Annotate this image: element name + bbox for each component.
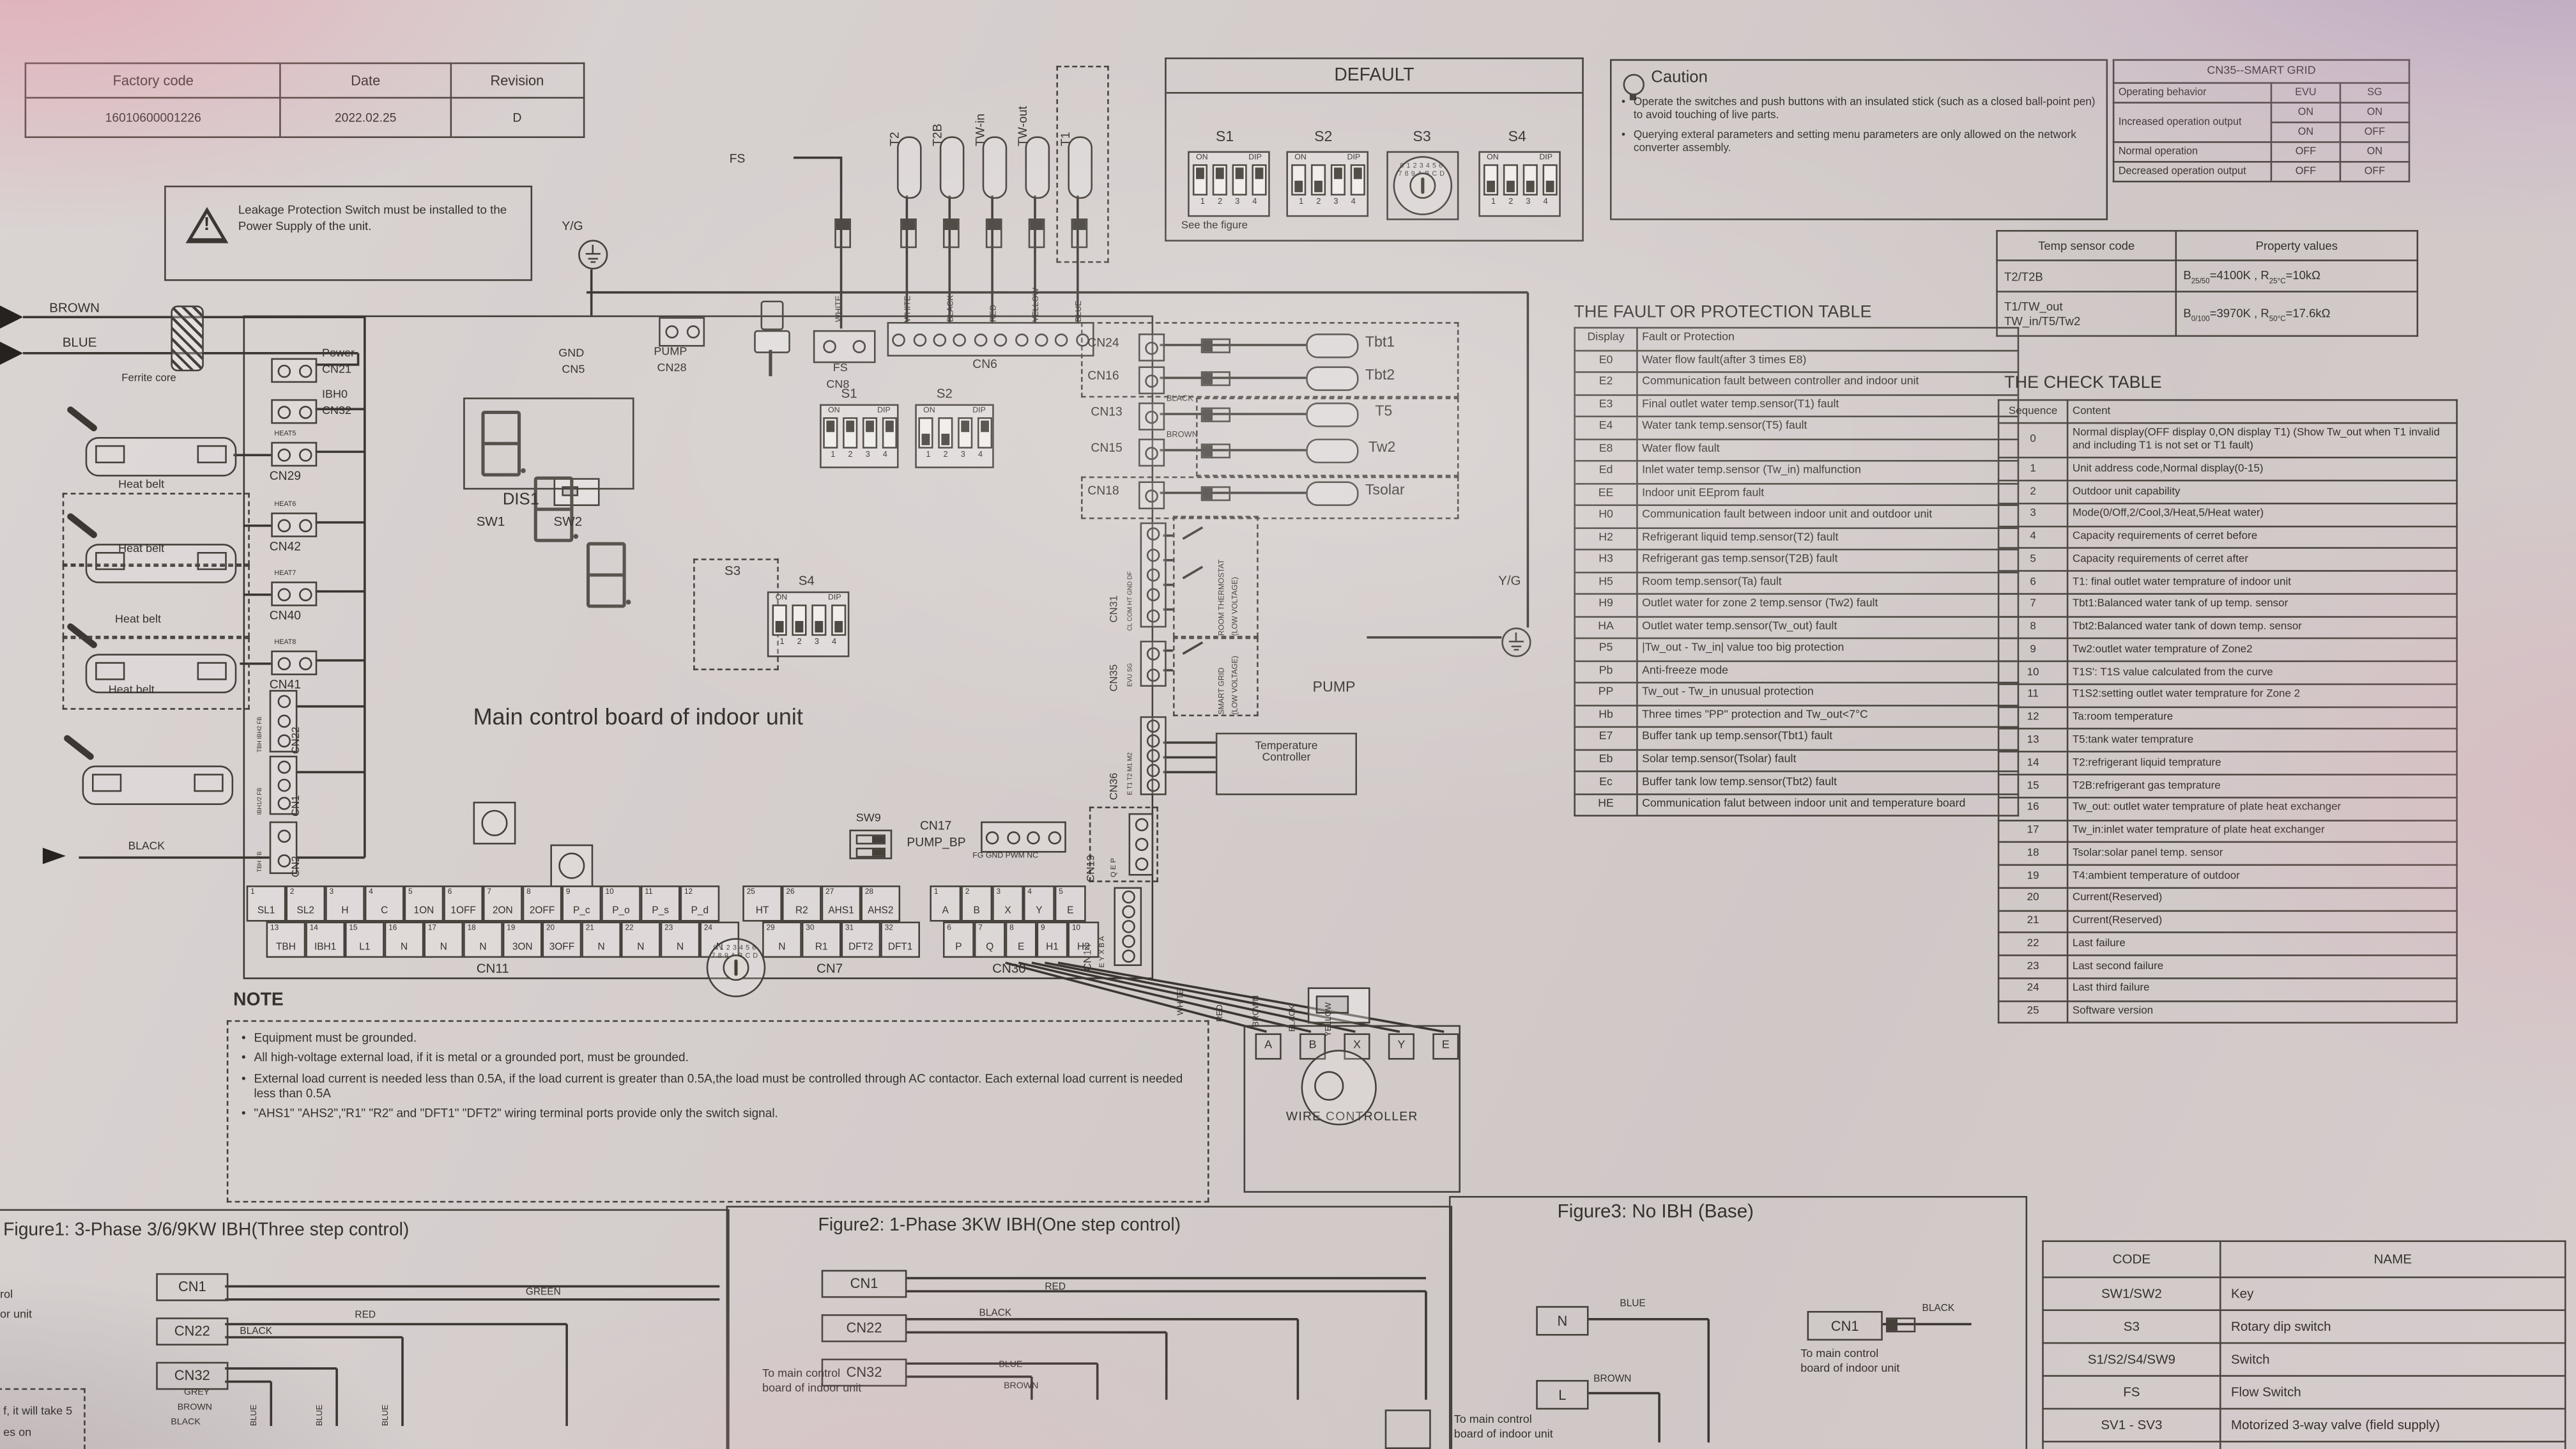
wc-wire-white: WHITE <box>1176 989 1186 1015</box>
t2-label: T2 <box>887 132 902 146</box>
fault-row: HAOutlet water temp.sensor(Tw_out) fault <box>1575 617 2018 639</box>
check-row: 20Current(Reserved) <box>1998 887 2457 910</box>
terminal: 9H1 <box>1037 922 1068 958</box>
code-row: SW1/SW2Key <box>2043 1277 2566 1310</box>
heat-belt-label: Heat belt <box>115 615 161 626</box>
connector-cn21 <box>271 358 317 383</box>
terminal: 1SL1 <box>247 885 286 922</box>
fault-header: Fault or Protection <box>1637 328 2018 350</box>
sw1-label: SW1 <box>477 514 505 529</box>
pump-text: PUMP <box>1313 678 1356 695</box>
cn42-label: CN42 <box>270 539 301 553</box>
room-thermostat-label: ROOM THERMOSTAT <box>1217 560 1225 636</box>
terminal: 18N <box>463 922 503 958</box>
fig2-cn1: CN1 <box>822 1270 907 1298</box>
ground-icon <box>578 240 608 269</box>
check-row: 10T1S': T1S value calculated from the cu… <box>1998 661 2457 684</box>
t1-wire-color: BLUE <box>1075 300 1084 322</box>
code-name-table: CODE NAME SW1/SW2KeyS3Rotary dip switchS… <box>2042 1240 2566 1449</box>
name-header: NAME <box>2220 1241 2565 1278</box>
sensor-tbt2 <box>1306 366 1358 391</box>
check-row: 18Tsolar:solar panel temp. sensor <box>1998 843 2457 865</box>
terminal: 21N <box>581 922 621 958</box>
board-s4-label: S4 <box>799 573 815 588</box>
connector-cn36 <box>1140 716 1167 795</box>
fault-table: Display Fault or Protection E0Water flow… <box>1574 327 2019 817</box>
fig1-black: BLACK <box>240 1328 272 1337</box>
fig1-blue: BLUE <box>381 1404 391 1426</box>
sg-row-label: Increased operation output <box>2113 103 2271 142</box>
default-settings-panel: DEFAULT S1 ONDIP 1 2 3 4 S2 ONDIP 1 2 3 … <box>1165 57 1584 241</box>
sg-row-label: Normal operation <box>2113 142 2271 162</box>
cn5-label: CN5 <box>562 365 585 376</box>
connector-cn40 <box>271 581 317 606</box>
code-row: S3Rotary dip switch <box>2043 1310 2566 1343</box>
connector-cn19 <box>1129 813 1154 876</box>
terminal: 14IBH1 <box>305 922 345 958</box>
wire-plug-icon <box>1201 443 1230 458</box>
cn2-label: CN2 <box>291 856 302 877</box>
low-voltage-label: (LOW VOLTAGE) <box>1230 655 1239 714</box>
date-value: 2022.02.25 <box>281 98 450 137</box>
terminal: 10H2 <box>1068 922 1099 958</box>
see-the-figure: See the figure <box>1181 220 1248 232</box>
fig1-grey: GREY <box>184 1388 210 1398</box>
fault-row: H5Room temp.sensor(Ta) fault <box>1575 572 2018 594</box>
t2-wire-color: WHITE <box>903 296 913 322</box>
code-row: SV1 - SV3Motorized 3-way valve (field su… <box>2043 1409 2566 1441</box>
fault-row: EdInlet water temp.sensor (Tw_in) malfun… <box>1575 461 2018 484</box>
fig2-red: RED <box>1045 1283 1066 1292</box>
temp-sensor-table: Temp sensor code Property values T2/T2B … <box>1996 230 2418 337</box>
terminal: 2SL2 <box>286 885 325 922</box>
fig2-cn22: CN22 <box>822 1314 907 1342</box>
cn7-label: CN7 <box>816 961 843 976</box>
date-header: Date <box>281 63 450 98</box>
heat8-label: HEAT8 <box>274 638 296 646</box>
terminal: 4C <box>365 885 404 922</box>
cn17-label: CN17 <box>920 818 951 833</box>
terminal: 23N <box>661 922 700 958</box>
terminal: 30R1 <box>802 922 841 958</box>
button-sw2 <box>550 845 593 887</box>
leakage-warning-text: Leakage Protection Switch must be instal… <box>238 202 521 234</box>
note-bullet: •Equipment must be grounded. <box>241 1030 1194 1045</box>
fault-row: H2Refrigerant liquid temp.sensor(T2) fau… <box>1575 528 2018 550</box>
heat-belt-label: Heat belt <box>118 480 164 491</box>
fig1-brown: BROWN <box>178 1403 212 1413</box>
terminal: 11P_s <box>641 885 680 922</box>
fig1-red: RED <box>355 1311 376 1321</box>
dip-switch-s2: ONDIP 1 2 3 4 <box>1286 151 1368 217</box>
terminal: 7Q <box>974 922 1006 958</box>
check-row: 13T5:tank water temprature <box>1998 730 2457 752</box>
check-row: 9Tw2:outlet water temprature of Zone2 <box>1998 639 2457 661</box>
terminal: 15L1 <box>345 922 385 958</box>
warning-triangle-icon: ! <box>186 207 229 243</box>
terminal: 6P <box>943 922 974 958</box>
tw-in-label: TW-in <box>972 114 987 146</box>
cn35-label: CN35 <box>1109 664 1121 692</box>
terminal: 22N <box>621 922 661 958</box>
dip-switch-s4: ONDIP 1 2 3 4 <box>1478 151 1561 217</box>
smart-grid-label: SMART GRID <box>1217 668 1225 715</box>
terminal: 26R2 <box>782 885 822 922</box>
wire-plug-icon <box>1071 218 1088 248</box>
fig1-blue: BLUE <box>250 1404 259 1426</box>
caution-title: Caution <box>1651 69 1708 87</box>
wire-plug-icon <box>1201 339 1230 353</box>
board-s2-label: S2 <box>937 386 953 401</box>
fig1-blue: BLUE <box>316 1404 325 1426</box>
fault-row: H0Communication fault between indoor uni… <box>1575 505 2018 528</box>
terminal: 3H <box>325 885 365 922</box>
fs-label: FS <box>730 151 746 166</box>
dip-numbers: 1 2 3 4 <box>1190 197 1268 207</box>
cn31-label: CN31 <box>1109 595 1121 623</box>
cn21-label: CN21 <box>322 365 351 376</box>
check-row: 19T4:ambient temperature of outdoor <box>1998 865 2457 887</box>
fig3-brown: BROWN <box>1593 1375 1631 1384</box>
tw-out-label: TW-out <box>1015 106 1030 146</box>
factory-code-header: Factory code <box>26 63 281 98</box>
check-row: 0Normal display(OFF display 0,ON display… <box>1998 423 2457 458</box>
ferrite-core-icon <box>171 305 203 371</box>
check-row: 5Capacity requirements of cerret after <box>1998 548 2457 571</box>
terminal: 5E <box>1055 885 1086 922</box>
check-row: 2Outdoor unit capability <box>1998 480 2457 503</box>
pump-icon <box>1301 1050 1377 1125</box>
note-title: NOTE <box>233 991 284 1011</box>
fault-row: EEIndoor unit EEprom fault <box>1575 483 2018 505</box>
ground-icon <box>1501 627 1531 657</box>
check-row: 4Capacity requirements of cerret before <box>1998 526 2457 548</box>
terminal-strip-cn7-bottom: 29N30R131DFT232DFT1 <box>762 922 920 958</box>
terminal-strip-cn7-top: 25HT26R227AHS128AHS2 <box>742 885 900 922</box>
caution-bullets: •Operate the switches and push buttons w… <box>1621 97 2098 162</box>
cn19-pins: Q E P <box>1109 858 1117 877</box>
fig2-brown: BROWN <box>1004 1382 1038 1391</box>
board-s1-label: S1 <box>841 386 857 401</box>
smart-grid-table: CN35--SMART GRID Operating behavior EVU … <box>2113 59 2410 183</box>
fs-cn8-label: FS <box>833 363 848 374</box>
terminal: 12P_d <box>680 885 720 922</box>
code-header: CODE <box>2043 1241 2221 1278</box>
cn6-label: CN6 <box>972 356 997 371</box>
fault-row: E3Final outlet water temp.sensor(T1) fau… <box>1575 394 2018 417</box>
yg-label-right: Y/G <box>1498 573 1521 588</box>
sequence-header: Sequence <box>1998 400 2067 422</box>
fig3-connector-stub <box>1385 1409 1431 1449</box>
cn36-pins: E T1 T2 M1 M2 <box>1127 753 1133 795</box>
caution-panel: Caution •Operate the switches and push b… <box>1610 59 2108 220</box>
tbt-dash-box <box>1081 322 1459 397</box>
cn30-label: CN30 <box>992 961 1026 976</box>
tw2-wire-color: BROWN <box>1167 431 1198 440</box>
on-label: ON <box>1196 155 1208 163</box>
fault-row: PPTw_out - Tw_in unusual protection <box>1575 683 2018 705</box>
connector-cn32 <box>271 399 317 424</box>
wire-plug-icon <box>1029 218 1045 248</box>
wiring-diagram-photo: Factory code Date Revision 1601060000122… <box>0 0 2576 1449</box>
heat-belt-4 <box>82 765 234 805</box>
content-header: Content <box>2067 400 2457 422</box>
terminal-strip-cn30-bottom: 6P7Q8E9H110H2 <box>943 922 1099 958</box>
display-dis1 <box>463 397 634 489</box>
heat-belt-3-box <box>63 565 250 638</box>
connector-cn42 <box>271 512 317 537</box>
tbt1-label: Tbt1 <box>1365 333 1395 350</box>
gnd-label: GND <box>558 348 584 360</box>
fig2-to-text: To main controlboard of indoor unit <box>762 1367 907 1397</box>
wc-wire-brown: BROWN <box>1252 995 1261 1027</box>
note-box: •Equipment must be grounded.•All high-vo… <box>227 1020 1209 1202</box>
cn24-label: CN24 <box>1087 335 1119 350</box>
fig3-cn1: CN1 <box>1807 1311 1883 1340</box>
sensor-tsolar <box>1306 481 1358 506</box>
check-row: 23Last second failure <box>1998 956 2457 978</box>
cn16-label: CN16 <box>1087 368 1119 383</box>
display-header: Display <box>1575 328 1637 350</box>
fault-row: H3Refrigerant gas temp.sensor(T2B) fault <box>1575 550 2018 572</box>
wire-plug-icon <box>943 218 960 248</box>
pump-label: PUMP <box>654 347 687 358</box>
fig2-blue: BLUE <box>999 1360 1022 1370</box>
sg-row-label: Decreased operation output <box>2113 162 2271 181</box>
check-table-title: THE CHECK TABLE <box>2004 373 2162 393</box>
cn22-micro-label: TBH IBH2 FB <box>256 717 263 753</box>
fig1-cn22: CN22 <box>156 1317 228 1345</box>
connector-cn18 <box>1138 481 1165 509</box>
fault-row: HbThree times "PP" protection and Tw_out… <box>1575 705 2018 728</box>
terminal: 3X <box>992 885 1023 922</box>
terminal: 16N <box>385 922 424 958</box>
t2b-wire-color: BLACK <box>946 295 956 322</box>
cn32-label: CN32 <box>322 406 351 417</box>
evu-header: EVU <box>2271 83 2340 103</box>
cn36-label: CN36 <box>1109 773 1121 801</box>
cn19-label: CN19 <box>1086 855 1098 882</box>
terminal: 61OFF <box>443 885 483 922</box>
terminal: 25HT <box>742 885 782 922</box>
check-row: 11T1S2:setting outlet water temprature f… <box>1998 684 2457 707</box>
connector-cn35 <box>1140 641 1167 687</box>
cn29-label: CN29 <box>270 468 301 483</box>
tw2-label: Tw2 <box>1368 439 1395 456</box>
connector-cn29 <box>271 442 317 467</box>
wire-plug-icon <box>834 218 851 248</box>
figure3-title: Figure3: No IBH (Base) <box>1558 1202 1754 1222</box>
note-bullet: •All high-voltage external load, if it i… <box>241 1050 1194 1066</box>
note-bullet: •External load current is needed less th… <box>241 1070 1194 1101</box>
fig1-side-text: rol <box>0 1290 13 1301</box>
property-header: Property values <box>2176 231 2418 260</box>
s4-label: S4 <box>1508 128 1526 145</box>
fig3-black: BLACK <box>1922 1305 1955 1314</box>
cn22-label: CN22 <box>291 727 302 755</box>
s3-label: S3 <box>1413 128 1430 145</box>
brown-wire-label: BROWN <box>49 301 100 316</box>
fig1-note-text: es on <box>3 1428 31 1439</box>
rotary-switch-s3: 0123456789ABCDEF <box>1386 151 1459 220</box>
button-sw1 <box>473 802 516 845</box>
check-row: 1Unit address code,Normal display(0-15) <box>1998 458 2457 480</box>
heat-belt-label: Heat belt <box>118 544 164 555</box>
cn40-label: CN40 <box>270 608 301 622</box>
figure2-title: Figure2: 1-Phase 3KW IBH(One step contro… <box>818 1216 1181 1236</box>
tw-in-wire-color: RED <box>989 305 999 322</box>
fig1-cn32: CN32 <box>156 1362 228 1390</box>
wc-terminal: E <box>1432 1033 1459 1059</box>
note-bullet: •"AHS1" "AHS2","R1" "R2" and "DFT1" "DFT… <box>241 1106 1194 1121</box>
board-title: Main control board of indoor unit <box>473 703 803 730</box>
check-row: 21Current(Reserved) <box>1998 910 2457 933</box>
terminal: 29N <box>762 922 802 958</box>
t5-wire-color: BLACK <box>1167 394 1193 404</box>
check-row: 8Tbt2:Balanced water tank of down temp. … <box>1998 617 2457 639</box>
terminal: 2B <box>961 885 992 922</box>
cn1-label: CN1 <box>291 795 302 816</box>
fig1-note-text: f, it will take 5 <box>3 1406 72 1418</box>
board-dip-s4: ONDIP 1 2 3 4 <box>767 592 850 657</box>
board-dip-s2: ONDIP 1 2 3 4 <box>915 404 993 468</box>
fig1-green: GREEN <box>526 1288 561 1298</box>
connector-cn24 <box>1138 333 1165 362</box>
wc-terminal: Y <box>1388 1033 1414 1059</box>
check-row: 17Tw_in:inlet water temprature of plate … <box>1998 820 2457 842</box>
wire-plug-icon <box>1201 371 1230 386</box>
s2-label: S2 <box>1314 128 1332 145</box>
cn35-pins: EVU SG <box>1127 663 1133 687</box>
wire-plug-icon <box>1201 486 1230 501</box>
pump-head <box>1308 987 1370 1023</box>
board-dip-s1: ONDIP 1 2 3 4 <box>820 404 898 468</box>
terminal-strip-cn30-top: 1A2B3X4Y5E <box>930 885 1085 922</box>
temp-code-header: Temp sensor code <box>1997 231 2176 260</box>
factory-code-table: Factory code Date Revision 1601060000122… <box>25 63 585 138</box>
check-row: 15T2B:refrigerant gas temprature <box>1998 774 2457 797</box>
check-table: Sequence Content 0Normal display(OFF dis… <box>1998 399 2458 1024</box>
sensor-tw2 <box>1306 439 1358 464</box>
fig1-note-box <box>0 1388 86 1449</box>
check-row: 3Mode(0/Off,2/Cool,3/Heat,5/Heat water) <box>1998 503 2457 526</box>
connector-cn17 <box>981 822 1066 853</box>
black-wire-label: BLACK <box>128 841 165 853</box>
wc-wire-yellow: YELLOW <box>1324 1002 1334 1037</box>
cn2-micro-label: TBH FB <box>256 852 263 873</box>
connector-cn8 <box>813 330 876 363</box>
smart-grid-box <box>1173 638 1259 716</box>
terminal: 51ON <box>404 885 444 922</box>
fig3-l-terminal: L <box>1536 1380 1588 1409</box>
connector-cn16 <box>1138 366 1165 394</box>
fig1-black2: BLACK <box>171 1418 200 1427</box>
fault-row: EcBuffer tank low temp.sensor(Tbt2) faul… <box>1575 772 2018 794</box>
connector-cn13 <box>1138 402 1165 431</box>
fs-wire-color: WHITE <box>834 296 844 322</box>
cn13-label: CN13 <box>1091 404 1122 419</box>
cn1-micro-label: IBH1/2 FB <box>256 788 263 815</box>
sensor-t5 <box>1306 402 1358 427</box>
terminal: 17N <box>424 922 463 958</box>
code-row: T2,T2B,TW-in <box>2043 1441 2566 1449</box>
terminal: 31DFT2 <box>841 922 881 958</box>
temperature-controller-box: TemperatureController <box>1216 733 1357 795</box>
tsolar-label: Tsolar <box>1365 481 1405 498</box>
connector-cn31 <box>1140 523 1167 628</box>
ferrite-core-label: Ferrite core <box>121 373 176 385</box>
check-row: 24Last third failure <box>1998 978 2457 1000</box>
sw9-label: SW9 <box>856 813 881 825</box>
terminal-strip-cn11-top: 1SL12SL23H4C51ON61OFF72ON82OFF9P_c10P_o1… <box>247 885 720 922</box>
terminal: 72ON <box>483 885 523 922</box>
terminal: 13TBH <box>266 922 306 958</box>
t1-label: T1 <box>1058 132 1073 146</box>
t5-label: T5 <box>1375 402 1392 419</box>
revision-value: D <box>450 98 584 137</box>
fault-row: E0Water flow fault(after 3 times E8) <box>1575 350 2018 372</box>
terminal-strip-cn11-bottom: 13TBH14IBH115L116N17N18N193ON203OFF21N22… <box>266 922 740 958</box>
flow-switch-icon <box>747 301 797 383</box>
fault-row: E4Water tank temp.sensor(T5) fault <box>1575 417 2018 439</box>
wire-plug-icon <box>986 218 1002 248</box>
dis1-label: DIS1 <box>503 491 539 509</box>
check-row: 25Software version <box>1998 1000 2457 1023</box>
terminal: 4Y <box>1023 885 1055 922</box>
fault-row: H9Outlet water for zone 2 temp.sensor (T… <box>1575 594 2018 617</box>
fault-row: E2Communication fault between controller… <box>1575 372 2018 395</box>
fault-row: EbSolar temp.sensor(Tsolar) fault <box>1575 749 2018 772</box>
connector-cn28 <box>659 317 705 346</box>
fig1-cn1: CN1 <box>156 1273 228 1301</box>
low-voltage-label: (LOW VOLTAGE) <box>1230 577 1239 636</box>
wc-wire-black: BLACK <box>1288 1005 1298 1032</box>
yg-label-top: Y/G <box>562 218 583 233</box>
bulb-icon <box>1623 74 1644 95</box>
connector-cn6 <box>887 322 1094 356</box>
terminal: 32DFT1 <box>880 922 920 958</box>
wc-wire-red: RED <box>1216 1004 1225 1022</box>
wire-plug-icon <box>1886 1317 1915 1332</box>
check-row: 14T2:refrigerant liquid temprature <box>1998 752 2457 774</box>
figure1-title: Figure1: 3-Phase 3/6/9KW IBH(Three step … <box>3 1221 409 1241</box>
dip-switch-s1: ONDIP 1 2 3 4 <box>1188 151 1270 217</box>
code-row: S1/S2/S4/SW9Switch <box>2043 1343 2566 1376</box>
board-s3-label: S3 <box>724 563 740 578</box>
check-row: 7Tbt1:Balanced water tank of up temp. se… <box>1998 594 2457 616</box>
check-row: 12Ta:room temperature <box>1998 707 2457 729</box>
cn31-pins: CL COM HT GND DF <box>1127 571 1133 631</box>
fault-row: E7Buffer tank up temp.sensor(Tbt1) fault <box>1575 728 2018 750</box>
fault-row: PbAnti-freeze mode <box>1575 661 2018 683</box>
wire-plug-icon <box>1201 408 1230 422</box>
board-rotary-s3: 0123456789ABCDEF <box>707 938 766 997</box>
behavior-header: Operating behavior <box>2113 83 2271 103</box>
check-row: 22Last failure <box>1998 933 2457 955</box>
tbt2-label: Tbt2 <box>1365 366 1395 383</box>
check-row: 6T1: final outlet water temprature of in… <box>1998 571 2457 594</box>
code-row: FSFlow Switch <box>2043 1376 2566 1409</box>
wire-plug-icon <box>900 218 917 248</box>
sensor-tbt1 <box>1306 333 1358 358</box>
fault-row: P5|Tw_out - Tw_in| value too big protect… <box>1575 639 2018 661</box>
figure1-box <box>0 1209 730 1449</box>
cn11-label: CN11 <box>477 961 509 976</box>
fault-row: E8Water flow fault <box>1575 439 2018 461</box>
smart-grid-title: CN35--SMART GRID <box>2113 60 2409 83</box>
terminal: 193ON <box>503 922 542 958</box>
heat-belt-4-box <box>63 638 250 710</box>
